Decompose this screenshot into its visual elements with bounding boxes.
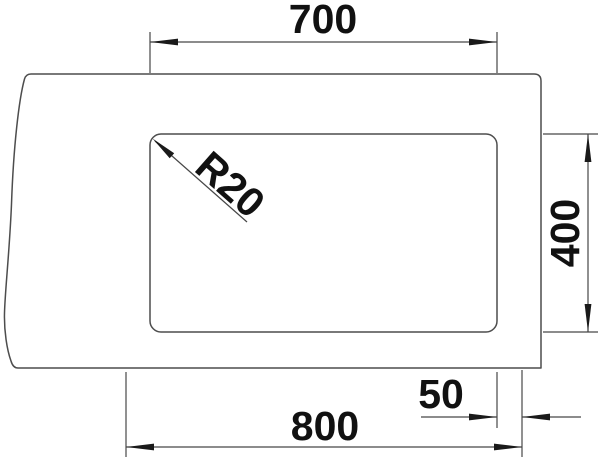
dim-700-label: 700 (289, 0, 357, 42)
dim-800-arrow-left (126, 444, 154, 451)
dim-700-arrow-right (469, 39, 497, 46)
dim-800-label: 800 (291, 403, 359, 449)
dim-cutout-height: 400 (542, 134, 598, 332)
drawing-canvas: 700 400 800 50 (0, 0, 600, 460)
sink-cutout-dimension-drawing: 700 400 800 50 (0, 0, 600, 460)
dim-700-arrow-left (150, 39, 178, 46)
dim-400-arrow-bottom (585, 304, 592, 332)
dim-400-label: 400 (542, 199, 588, 267)
dim-50-label: 50 (418, 371, 464, 417)
dim-50-arrow-right (522, 414, 550, 421)
dim-800-arrow-right (494, 444, 522, 451)
dim-50-arrow-left (469, 414, 497, 421)
dim-edge-offset: 50 (418, 371, 581, 428)
dim-400-arrow-top (585, 134, 592, 162)
dim-cutout-width: 700 (150, 0, 497, 73)
